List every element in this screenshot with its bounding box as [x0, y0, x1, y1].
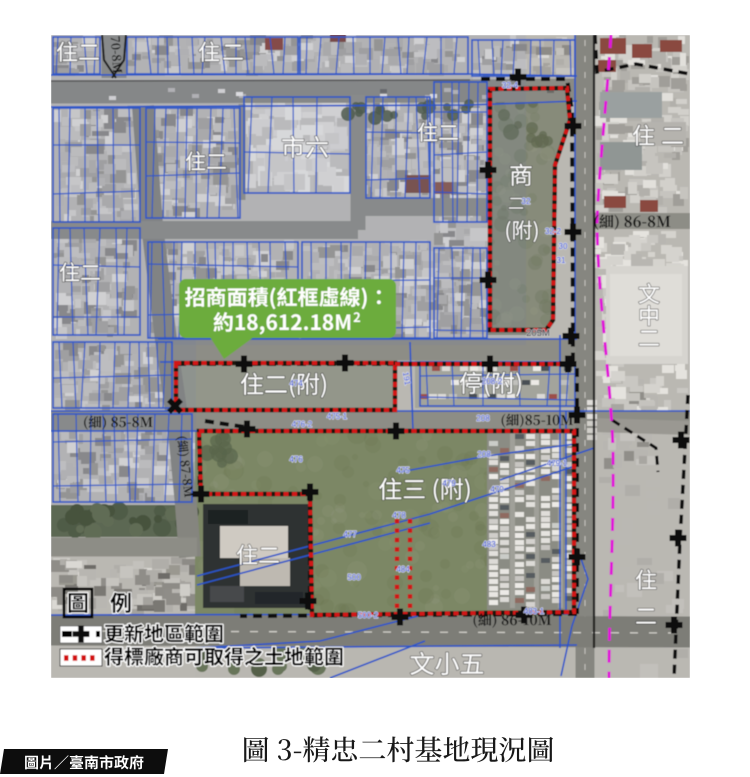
svg-text:476: 476 [289, 455, 303, 464]
svg-text:477: 477 [343, 530, 357, 539]
svg-text:208: 208 [476, 414, 490, 423]
svg-text:208-2: 208-2 [482, 377, 503, 386]
svg-text:475: 475 [396, 466, 410, 475]
svg-text:479-1: 479-1 [547, 459, 568, 468]
svg-text:500: 500 [347, 573, 361, 582]
svg-text:32: 32 [522, 197, 531, 206]
svg-text:32-4: 32-4 [502, 81, 519, 90]
svg-text:476-2: 476-2 [292, 420, 313, 429]
svg-text:208: 208 [477, 450, 491, 459]
svg-text:474: 474 [289, 379, 303, 388]
svg-text:479: 479 [442, 479, 456, 488]
svg-text:31: 31 [557, 256, 566, 265]
svg-text:475-1: 475-1 [327, 412, 348, 421]
svg-text:484: 484 [396, 565, 410, 574]
svg-text:30: 30 [559, 242, 568, 251]
svg-text:500-2: 500-2 [358, 611, 379, 620]
svg-text:32-2: 32-2 [545, 227, 562, 236]
svg-text:478: 478 [392, 511, 406, 520]
svg-text:470: 470 [490, 485, 504, 494]
svg-text:483-1: 483-1 [524, 607, 545, 616]
svg-text:483: 483 [482, 540, 496, 549]
svg-text:205M: 205M [526, 328, 550, 339]
